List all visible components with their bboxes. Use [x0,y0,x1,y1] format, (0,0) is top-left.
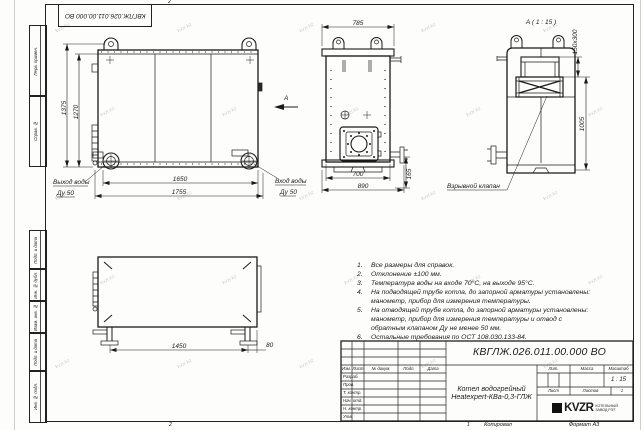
kvzr-logo-icon [552,403,562,413]
product-name-line2: Heatexpert-КВа-0,3-ГЛЖ [451,393,532,401]
row-prov: Пров. [341,381,365,389]
front-view-drawing [53,38,306,199]
inlet-size: Ду 50 [279,189,297,196]
center-mark [106,56,254,64]
flange-bolts [343,130,375,158]
dim-1005: 1005 [579,116,586,131]
bolt-row [331,70,385,156]
note-number: 5. [353,307,371,334]
dim-150x300: 150х300 [572,29,579,54]
note-text: На подводящей трубе котла, до запорной а… [371,289,597,307]
note-item: 2.Отклонение ±100 мм. [353,271,597,280]
dim-1270: 1270 [73,104,80,119]
kvzr-logo-text: KVZR [564,402,593,415]
dim-1755: 1755 [172,189,187,196]
support-legs [107,327,250,341]
note-number: 1. [353,262,371,271]
note-text: На отводящей трубе котла, до запорной ар… [371,307,597,334]
note-number: 4. [353,289,371,307]
detail-title: А ( 1 : 15 ) [525,19,556,26]
detail-view-drawing [447,36,590,191]
row-nachotd: Нач. отд. [341,397,365,405]
sheet-label: Лист [537,387,570,395]
col-izm: Изм. [341,365,352,373]
note-item: 4.На подводящей трубе котла, до запорной… [353,289,597,307]
row-nkontr: Н. контр. [341,405,365,413]
valve-cross-brace [519,81,560,93]
technical-notes: 1.Все размеры для справок. 2.Отклонение … [353,262,597,343]
col-data: Дата [420,365,446,373]
note-text: Отклонение ±100 мм. [371,271,597,280]
foot-plate [240,341,257,345]
boiler-body-plan [98,257,257,327]
sheets-label: Листов [570,387,611,395]
company-name: КОТЕЛЬНЫЙ ЗАВОД РЭТ [595,404,618,412]
note-item: 1.Все размеры для справок. [353,262,597,271]
ladder-strip [93,272,98,306]
lifting-lug [333,38,344,50]
dim-1650: 1650 [173,176,188,183]
boiler-body-side [326,56,390,162]
note-item: 5.На отводящей трубе котла, до запорной … [353,307,597,334]
note-item: 3.Температура воды на входе 70°С, на вых… [353,280,597,289]
valve-label: Взрывной клапан [447,182,500,190]
col-list: Лист [352,365,364,373]
plan-view-texts: 1450 80 [172,342,274,350]
view-arrow-label: А [283,95,288,102]
note-text: Температура воды на входе 70°С, на выход… [371,280,597,289]
company-line2: ЗАВОД РЭТ [595,408,618,412]
row-utv: Утв. [341,413,365,421]
note-number: 2. [353,271,371,280]
drain-pipe [390,152,400,157]
top-cap [322,49,394,56]
side-view-drawing [322,24,410,193]
col-doc: № докум. [364,365,398,373]
lifting-lug [371,38,382,50]
dim-890: 890 [358,183,369,190]
corner-ticks [104,262,251,322]
outlet-label: Выход воды [53,178,90,186]
dim-785: 785 [353,20,364,27]
side-tab [258,83,262,91]
lifting-lug [242,38,256,50]
pipe-stub [390,56,401,63]
outlet-size: Ду 50 [56,190,74,197]
note-number: 6. [353,334,371,343]
dim-1450: 1450 [172,343,187,350]
lifting-lug [104,38,118,50]
front-view-texts: 1375 1270 1650 1755 Выход воды Ду 50 Вхо… [53,95,307,197]
product-name: Котел водогрейный Heatexpert-КВа-0,3-ГЛЖ [447,366,536,420]
company-logo-cell: KVZR КОТЕЛЬНЫЙ ЗАВОД РЭТ [537,395,633,421]
inlet-label: Вход воды [275,177,307,185]
dim-165: 165 [406,168,413,179]
inlet-stub [232,150,248,156]
col-podp: Подп. [398,365,420,373]
burner-opening [351,136,367,152]
note-text: Все размеры для справок. [371,262,597,271]
bolt-row [101,52,255,164]
dim-80: 80 [266,342,274,349]
detail-view-texts: А ( 1 : 15 ) 150х300 1005 Взрывной клапа… [447,19,586,190]
scale-value: 1 : 15 [604,373,633,387]
valve-leader [447,96,547,190]
rear-pipe [496,152,507,158]
boiler-body-front [98,50,258,167]
drawing-sheet: kvzr.kzkvzr.kzkvzr.kzkvzr.kzkvzr.kzkvzr.… [0,0,644,430]
row-razrab: Разраб. [341,373,365,381]
foot-plate [101,341,118,345]
lit-label: Лит. [537,365,570,373]
pipe-stub [497,56,507,61]
dim-700: 700 [353,171,364,178]
dim-1375: 1375 [61,100,68,115]
side-view-texts: 785 700 890 165 [353,20,413,190]
plan-view-drawing [93,257,266,353]
chimney-box [521,57,559,77]
title-doc-number: КВГЛЖ.026.011.00.000 ВО [446,341,633,365]
row-tkontr: Т. контр. [341,389,365,397]
note-number: 3. [353,280,371,289]
mass-label: Масса [570,365,604,373]
scale-label: Масштаб [604,365,633,373]
sheets-value: 1 [611,387,633,395]
